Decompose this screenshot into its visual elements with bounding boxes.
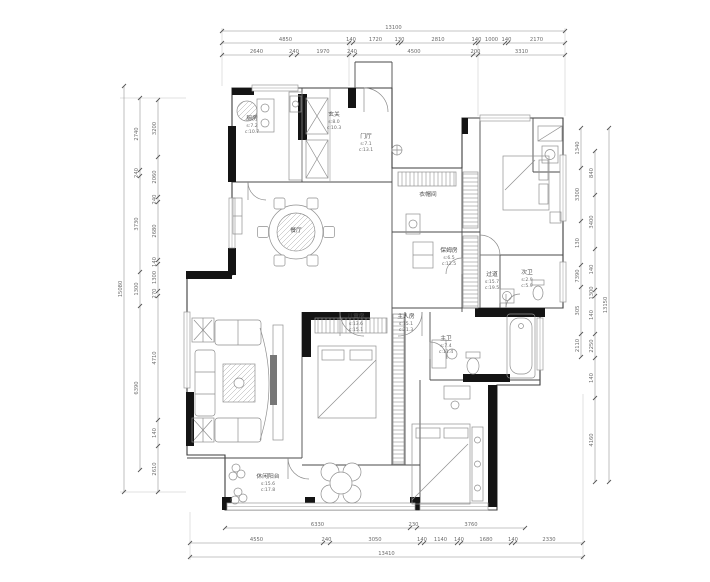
cabinet (413, 242, 433, 268)
room-name: 保姆房 (440, 246, 458, 254)
room-area-s: s:15.6 (261, 481, 275, 487)
dim-label: 140 (472, 37, 482, 43)
dim-ruler-left-0: 15080 (118, 84, 126, 494)
dim-label: 1720 (369, 37, 382, 43)
dim-label: 6390 (134, 381, 140, 394)
stove (257, 99, 274, 132)
dim-label: 3760 (464, 522, 477, 528)
dim-label: 130 (575, 238, 581, 248)
dim-label: 140 (589, 373, 595, 383)
dim-label: 2610 (152, 462, 158, 475)
plant (229, 464, 247, 504)
dim-label: 240 (152, 195, 158, 205)
room-name: 玄关 (328, 110, 340, 118)
dim-ruler-right-0: 1340330013073903052110 (575, 126, 583, 359)
dim-label: 240 (322, 537, 332, 543)
dim-ruler-top-0: 13100 (220, 25, 567, 33)
dim-label: 1140 (434, 537, 447, 543)
window (560, 155, 566, 221)
balcony-door-arc (288, 458, 309, 479)
window (560, 262, 566, 302)
dim-label: 2250 (589, 339, 595, 352)
room-area-s: s:7.4 (440, 343, 451, 349)
dim-label: 2810 (431, 37, 444, 43)
dim-label: 140 (454, 537, 464, 543)
dim-label: 130 (395, 37, 405, 43)
room-name: 主卫 (440, 334, 452, 342)
dim-ruler-right-2: 13150 (603, 126, 611, 484)
entry-door-arc (364, 88, 388, 112)
room-name: 门厅 (360, 132, 372, 140)
bedroom-tr-door-arc (480, 235, 500, 255)
dressing-table (444, 386, 470, 409)
guest-bath-door-arc (506, 294, 520, 308)
room-label: 过道s:15.7c:19.5 (485, 270, 499, 291)
dim-label: 140 (589, 265, 595, 275)
nightstand (550, 212, 561, 223)
dim-label: 3050 (368, 537, 381, 543)
room-label: 玄关s:8.0c:10.3 (327, 110, 341, 131)
room-area-s: s:6.5 (443, 255, 454, 261)
room-area-s: s:2.9 (521, 277, 532, 283)
dim-label: 1300 (152, 271, 158, 284)
dim-label: 140 (508, 537, 518, 543)
room-area-c: c:10.7 (245, 129, 259, 135)
window (252, 85, 298, 91)
dim-label: 2110 (575, 339, 581, 352)
windows (184, 85, 566, 510)
sofa (215, 320, 261, 345)
room-name: 儿童房 (347, 312, 365, 320)
window (537, 318, 543, 370)
dresser (472, 427, 483, 501)
dim-label: 2740 (134, 127, 140, 140)
room-label: 厨房s:7.2c:10.7 (245, 114, 259, 135)
washing-machine (542, 146, 558, 163)
dimension-annotations: 1310048501401720130281014010001402170264… (118, 25, 611, 559)
room-name: 餐厅 (290, 226, 302, 234)
room-name: 过道 (486, 270, 498, 278)
dim-ruler-bottom-1: 45502403050140114014016801402330 (188, 537, 585, 545)
dim-label: 1000 (485, 37, 498, 43)
room-label: 主人房s:15.1c:21.3 (397, 312, 415, 333)
room-area-s: s:8.0 (328, 119, 339, 125)
dim-label: 3730 (134, 217, 140, 230)
room-label: 门厅s:7.1c:13.1 (359, 132, 373, 153)
stairs (463, 172, 478, 308)
drain-symbol (392, 145, 402, 155)
plant-box (192, 418, 214, 442)
floor-plan-canvas: 1310048501401720130281014010001402170264… (0, 0, 710, 582)
cabinet (406, 214, 420, 234)
dim-label: 2640 (250, 49, 263, 55)
dim-label: 1300 (589, 286, 595, 299)
dim-label: 3300 (575, 188, 581, 201)
room-label: 儿童房s:13.6c:15.1 (347, 312, 365, 333)
room-area-c: c:13.1 (359, 147, 373, 153)
dim-ruler-left-2: 320020602402680140130027047101402610 (152, 98, 160, 494)
room-area-c: c:5.9 (521, 283, 532, 289)
dim-label: 140 (346, 37, 356, 43)
room-label: 次卫s:2.9c:5.9 (521, 268, 533, 289)
room-area-c: c:21.3 (399, 327, 413, 333)
dim-label: 240 (134, 168, 140, 178)
dim-ruler-bottom-0: 63302303760 (223, 522, 527, 530)
dim-label: 140 (417, 537, 427, 543)
room-label: 主卫s:7.4c:11.4 (439, 334, 453, 355)
dim-label: 305 (575, 306, 581, 316)
tall-cabinet (306, 98, 328, 134)
dim-label: 270 (152, 289, 158, 299)
bathtub (507, 314, 535, 378)
plant-box (192, 318, 214, 342)
dim-label: 240 (347, 49, 357, 55)
toilet (532, 280, 544, 300)
room-area-c: c:15.1 (349, 327, 363, 333)
room-area-c: c:12.5 (442, 261, 456, 267)
dim-label: 2680 (152, 224, 158, 237)
clover-table-set (321, 463, 361, 503)
dim-label: 1340 (575, 141, 581, 154)
room-label: 休闲阳台s:15.6c:17.8 (256, 472, 279, 493)
dim-label: 2060 (152, 170, 158, 183)
dim-label: 13150 (603, 297, 609, 314)
dim-label: 13100 (385, 25, 402, 31)
room-area-c: c:11.4 (439, 349, 453, 355)
room-area-s: s:13.6 (349, 321, 363, 327)
room-area-c: c:19.5 (485, 285, 499, 291)
room-area-s: s:7.2 (246, 123, 257, 129)
dim-label: 15080 (118, 281, 124, 298)
dim-ruler-bottom-2: 13410 (188, 551, 585, 559)
room-label: 保姆房s:6.5c:12.5 (440, 246, 458, 267)
bed (318, 346, 376, 418)
room-label: 衣帽间 (419, 190, 437, 198)
walls (186, 62, 563, 510)
dim-label: 3400 (589, 215, 595, 228)
sofa (215, 418, 261, 442)
room-name: 休闲阳台 (256, 472, 279, 480)
dim-label: 3200 (152, 122, 158, 135)
dim-label: 230 (409, 522, 419, 528)
dim-ruler-right-1: 8403400140130014022501404160 (589, 149, 597, 484)
dim-label: 840 (589, 168, 595, 178)
room-area-c: c:10.3 (327, 125, 341, 131)
dim-ruler-top-2: 2640240197024045002003310 (220, 49, 567, 57)
room-name: 主人房 (397, 312, 415, 320)
outer-wall-outline (187, 88, 563, 510)
balcony-window-rail (227, 503, 415, 510)
dim-label: 4710 (152, 351, 158, 364)
dim-label: 2330 (542, 537, 555, 543)
room-name: 厨房 (246, 114, 258, 122)
bed (503, 156, 549, 210)
dim-label: 4500 (407, 49, 420, 55)
room-name: 次卫 (521, 268, 533, 276)
dim-label: 4850 (279, 37, 292, 43)
window (480, 115, 530, 121)
dim-label: 240 (289, 49, 299, 55)
dim-label: 1300 (134, 282, 140, 295)
dim-ruler-top-1: 48501401720130281014010001402170 (220, 37, 567, 45)
dim-label: 4160 (589, 433, 595, 446)
laundry-sink (538, 126, 562, 141)
fridge (306, 140, 328, 178)
dim-label: 1680 (479, 537, 492, 543)
furniture (192, 92, 562, 504)
floor-plan-svg: 1310048501401720130281014010001402170264… (0, 0, 710, 582)
window (229, 198, 235, 248)
tv-console (270, 325, 283, 440)
dim-label: 2170 (530, 37, 543, 43)
interior-walls (187, 62, 563, 510)
room-area-s: s:15.7 (485, 279, 499, 285)
dim-ruler-left-1: 2740240373013006390 (134, 96, 142, 472)
dim-label: 13410 (378, 551, 395, 557)
dim-label: 3310 (515, 49, 528, 55)
coffee-table (223, 364, 255, 402)
dim-label: 1970 (316, 49, 329, 55)
dim-label: 7390 (575, 269, 581, 282)
bed (412, 424, 470, 504)
washbasin (500, 289, 514, 303)
room-label: 餐厅 (290, 226, 302, 234)
dim-label: 4550 (250, 537, 263, 543)
sofa (195, 350, 215, 416)
toilet (466, 352, 480, 374)
room-area-s: s:7.1 (360, 141, 371, 147)
dim-label: 140 (152, 428, 158, 438)
dim-label: 140 (589, 310, 595, 320)
dim-label: 140 (152, 257, 158, 267)
room-name: 衣帽间 (419, 190, 437, 198)
room-area-s: s:15.1 (399, 321, 413, 327)
window (184, 312, 190, 388)
room-area-c: c:17.8 (261, 487, 275, 493)
dim-label: 200 (471, 49, 481, 55)
wardrobe (393, 314, 404, 464)
kitchen-door-arc (248, 182, 266, 200)
dim-label: 6330 (311, 522, 324, 528)
dim-label: 140 (502, 37, 512, 43)
cloakroom-closet (398, 172, 456, 186)
